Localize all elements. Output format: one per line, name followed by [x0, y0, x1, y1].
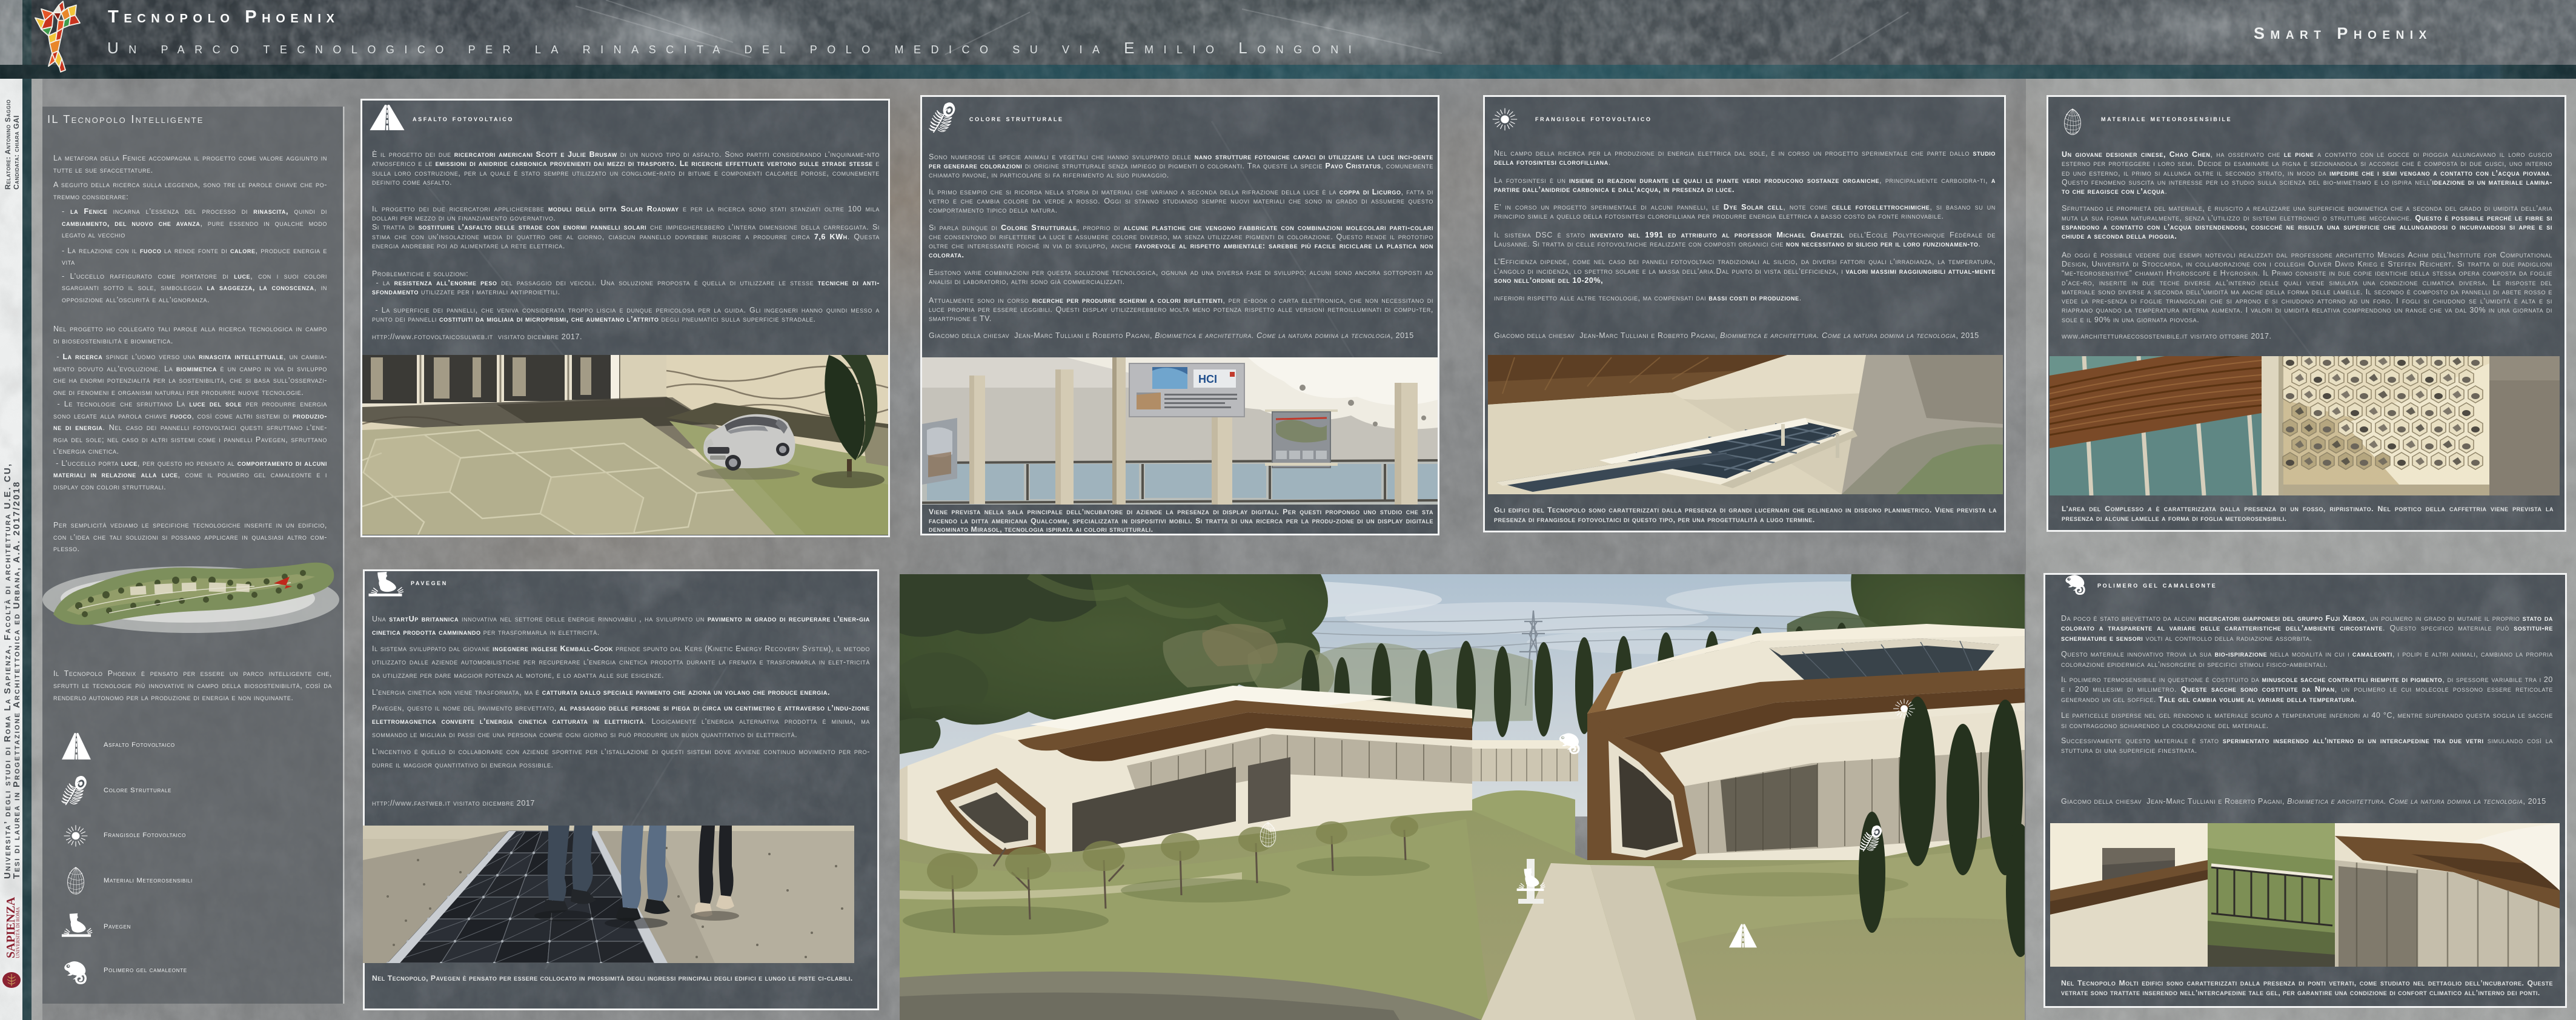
svg-text:HCI: HCI [1198, 373, 1217, 385]
svg-text:UNIVERSITÀ DI ROMA: UNIVERSITÀ DI ROMA [15, 907, 21, 958]
